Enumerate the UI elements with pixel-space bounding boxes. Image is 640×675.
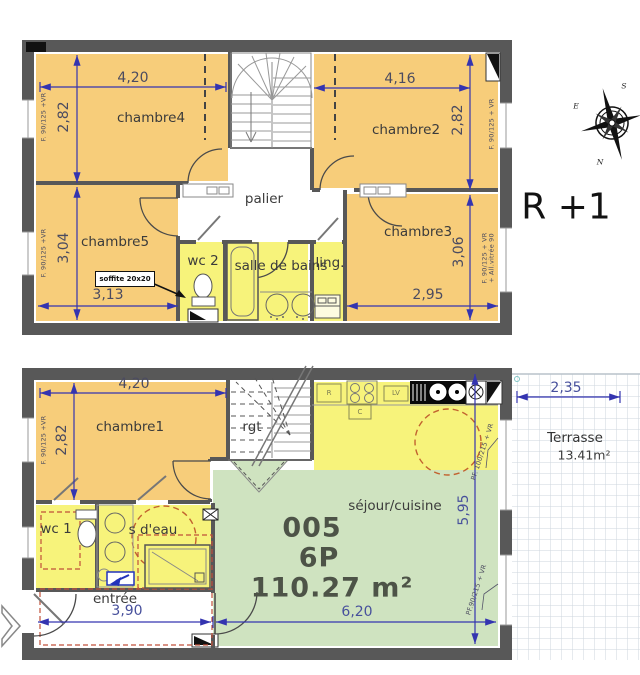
window-label-upper-right-top: F. 90/125 + VR: [488, 98, 495, 149]
label-terrasse: Terrasse: [547, 430, 603, 446]
unit-area: 110.27 m²: [251, 573, 414, 604]
dim-upper-right-bottom: 3,06: [451, 236, 467, 267]
label-chambre5: chambre5: [81, 234, 149, 250]
dim-upper-bottom-left: 3,13: [92, 287, 123, 303]
dim-lower-top: 4,20: [118, 376, 149, 392]
dim-lower-left: 2,82: [54, 424, 70, 455]
label-entree: entrée: [93, 591, 137, 607]
label-sdeau: s d'eau: [129, 522, 178, 538]
dim-upper-top-left: 4,20: [117, 70, 148, 86]
label-wc2: wc 2: [187, 253, 218, 269]
dim-sejour-height: 5,95: [456, 494, 472, 525]
dim-upper-right-top: 2,82: [450, 104, 466, 135]
terrasse-area-value: 13.41m²: [558, 448, 611, 463]
label-chambre4: chambre4: [117, 110, 185, 126]
window-label-upper-left-top: F. 90/125 +VR: [40, 93, 47, 142]
label-rgt: rgt: [242, 419, 261, 435]
floor-plan-page: 4,20 4,16 2,82 2,82 3,04 3,06 3,13 2,95 …: [0, 0, 640, 675]
dim-upper-bottom-right: 2,95: [412, 287, 443, 303]
dim-upper-top-right: 4,16: [384, 71, 415, 87]
entrance-chevron-icon: [2, 606, 20, 646]
hob-letter: C: [358, 408, 363, 416]
unit-number: 005: [282, 513, 341, 544]
dim-sejour-width: 6,20: [341, 604, 372, 620]
label-chambre3: chambre3: [384, 224, 452, 240]
label-palier: palier: [245, 191, 283, 207]
label-sejour-cuisine: séjour/cuisine: [348, 498, 441, 514]
compass-rose-icon: [572, 80, 640, 168]
upper-floor-title: R +1: [521, 187, 611, 228]
dim-terrasse-width: 2,35: [550, 380, 581, 396]
label-salle-de-bains: salle de bains: [235, 258, 328, 274]
window-label-upper-right-bottom: F. 90/125 + VR + All.vitrée 90: [482, 232, 497, 283]
compass-east: E: [573, 102, 578, 111]
label-chambre1: chambre1: [96, 419, 164, 435]
fridge-letter: R: [327, 389, 332, 397]
window-label-upper-left-bottom: F. 90/125 +VR: [40, 229, 47, 278]
label-ling: ling.: [316, 255, 345, 271]
label-wc1: wc 1: [40, 521, 71, 537]
compass-north: N: [597, 158, 604, 167]
terrasse-area: [512, 374, 640, 660]
bathtub: [227, 243, 258, 320]
dim-upper-left-bottom: 3,04: [56, 232, 72, 263]
corner-post: [26, 42, 46, 52]
soffite-note: soffite 20x20: [95, 271, 155, 287]
label-chambre2: chambre2: [372, 122, 440, 138]
compass-south: S: [621, 82, 626, 91]
unit-type: 6P: [299, 543, 340, 574]
dishwasher-letter: LV: [392, 389, 400, 397]
window-label-lower-left: F. 90/125 +VR: [40, 416, 47, 465]
dim-upper-left-top: 2,82: [56, 101, 72, 132]
